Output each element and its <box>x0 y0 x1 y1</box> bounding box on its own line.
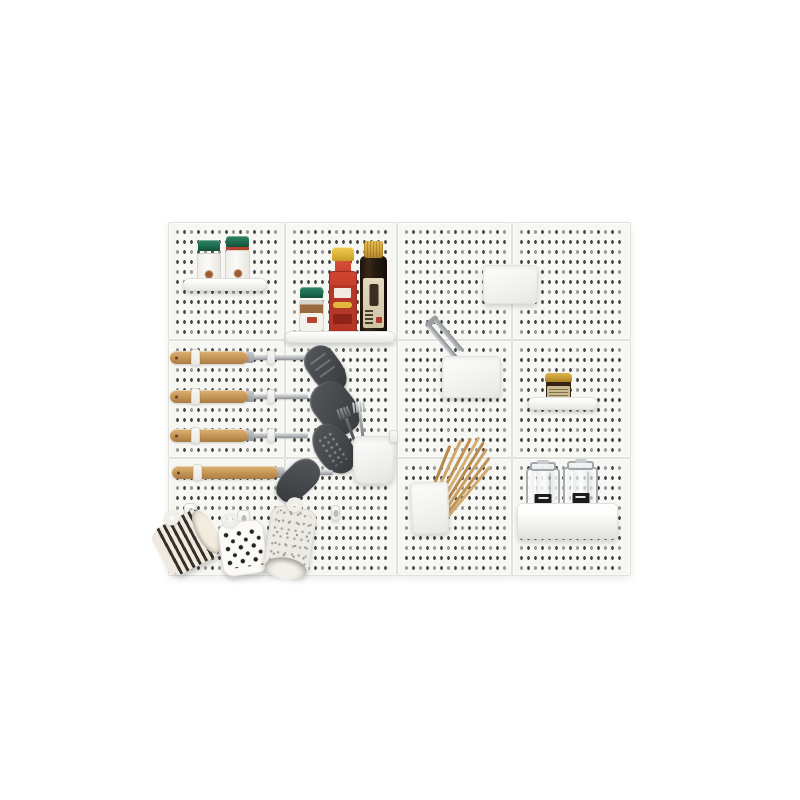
spice-shelf <box>183 278 267 291</box>
polka-dot-cup <box>216 518 269 578</box>
label-text-marks <box>365 310 373 324</box>
utensil-shaft <box>253 433 308 438</box>
spice-jar-right <box>225 236 250 284</box>
chopstick-bin <box>410 481 450 534</box>
white-wall-bin <box>442 356 501 398</box>
utensil-clip <box>191 349 200 366</box>
glass-jar-tray <box>517 503 618 539</box>
condiment-jar-lid <box>545 373 572 382</box>
product-photo <box>0 0 800 800</box>
chili-sauce-bottle <box>329 247 357 336</box>
bottle-cap <box>364 241 383 258</box>
glass-jar-lid <box>530 462 556 471</box>
spice-jar-label <box>300 313 323 331</box>
spice-jar-label-art <box>233 269 242 278</box>
utensil-shaft <box>253 394 308 399</box>
condiment-shelf <box>528 397 598 410</box>
polka-dots <box>222 527 265 570</box>
label-white-patch <box>334 288 351 298</box>
utensil-clip <box>267 428 275 443</box>
fork-cup <box>353 436 395 484</box>
spice-jar-cap <box>300 287 323 298</box>
label-figure-art <box>369 284 378 306</box>
utensil-clip <box>267 389 275 404</box>
label-art <box>333 314 352 324</box>
bottle-cap <box>332 247 354 261</box>
spice-jar-cap <box>198 240 220 251</box>
bottle-label <box>330 285 356 327</box>
utensil-wood-handle <box>170 390 248 403</box>
utensil-wood-handle <box>170 429 248 442</box>
utensil-wood-handle <box>172 466 278 479</box>
label-red-seal <box>376 317 382 323</box>
utensil-clip <box>267 350 275 365</box>
utensil-clip <box>193 464 202 481</box>
white-storage-box <box>483 265 538 304</box>
soy-sauce-bottle <box>360 241 387 336</box>
utensil-clip <box>191 427 200 444</box>
glass-jar-lid <box>567 461 594 470</box>
bottle-label <box>363 278 384 328</box>
utensil-wood-handle <box>170 351 248 364</box>
utensil-clip <box>191 388 200 405</box>
sauce-shelf <box>285 331 395 343</box>
cup-bottom <box>150 533 178 576</box>
label-yellow-patch <box>333 302 352 308</box>
cup-clip <box>389 430 398 443</box>
wall-hook-small <box>331 505 340 521</box>
small-spice-jar <box>299 287 324 333</box>
spice-jar-cap <box>226 236 249 247</box>
utensil-shaft <box>253 355 308 360</box>
